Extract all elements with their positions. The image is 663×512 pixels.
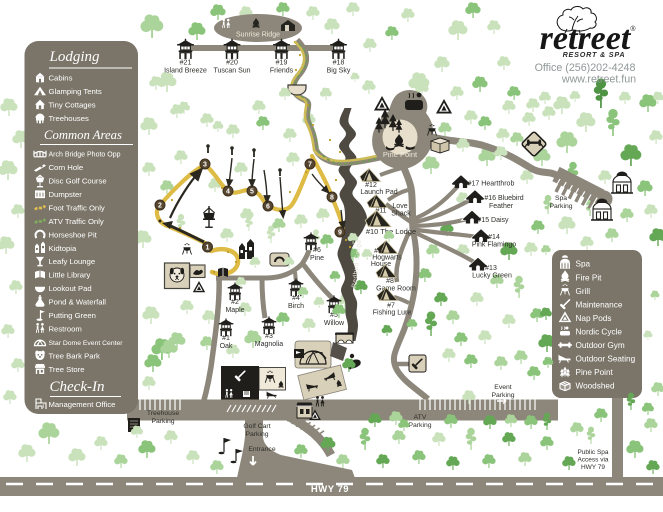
svg-text:#1: #1: [222, 335, 230, 342]
svg-text:Launch Pad: Launch Pad: [360, 189, 397, 196]
svg-text:Event: Event: [494, 384, 511, 391]
svg-text:#12: #12: [365, 182, 377, 189]
svg-text:Golf Cart: Golf Cart: [243, 423, 270, 430]
svg-text:#2: #2: [231, 299, 239, 306]
svg-text:Glamping Tents: Glamping Tents: [49, 87, 102, 96]
svg-text:Woodshed: Woodshed: [576, 382, 615, 391]
svg-text:Disc Golf Course: Disc Golf Course: [49, 177, 107, 186]
svg-text:Check-In: Check-In: [50, 379, 105, 395]
svg-text:#14: #14: [488, 234, 500, 241]
svg-text:Outdoor Gym: Outdoor Gym: [576, 341, 625, 350]
svg-text:Lookout Pad: Lookout Pad: [49, 284, 92, 293]
svg-text:#15 Daisy: #15 Daisy: [477, 217, 509, 224]
svg-text:4: 4: [226, 189, 230, 196]
svg-text:Parking: Parking: [549, 203, 572, 210]
svg-text:#6: #6: [313, 247, 321, 254]
svg-text:Foot Traffic Only: Foot Traffic Only: [49, 203, 105, 212]
svg-text:Maintenance: Maintenance: [576, 300, 623, 309]
svg-text:Tiny Cottages: Tiny Cottages: [49, 100, 96, 109]
svg-text:Pine Point: Pine Point: [383, 150, 418, 159]
svg-text:8: 8: [330, 195, 334, 202]
svg-text:6: 6: [266, 204, 270, 211]
svg-text:Grill: Grill: [576, 287, 591, 296]
svg-text:#21: #21: [180, 60, 192, 67]
svg-text:HWY 79: HWY 79: [311, 484, 349, 495]
svg-text:®: ®: [630, 25, 636, 33]
svg-text:Horseshoe Pit: Horseshoe Pit: [49, 230, 98, 239]
svg-text:HWY 79: HWY 79: [581, 464, 605, 471]
svg-text:#3: #3: [265, 333, 273, 340]
svg-text:#8: #8: [386, 278, 394, 285]
svg-text:Nap Pods: Nap Pods: [576, 314, 612, 323]
svg-text:Kidtopia: Kidtopia: [49, 244, 78, 253]
svg-text:Fire Pit: Fire Pit: [576, 273, 603, 282]
svg-text:Arch Bridge Photo Opp: Arch Bridge Photo Opp: [49, 152, 121, 159]
svg-text:3: 3: [203, 162, 207, 169]
svg-text:#7: #7: [387, 303, 395, 310]
svg-text:Lucky Green: Lucky Green: [472, 273, 512, 280]
svg-text:Parking: Parking: [408, 422, 431, 429]
svg-text:1: 1: [206, 245, 210, 252]
svg-text:Birch: Birch: [288, 303, 304, 310]
svg-text:Star Dome Event Center: Star Dome Event Center: [49, 340, 124, 347]
svg-text:Restroom: Restroom: [49, 324, 82, 333]
svg-text:Putting Green: Putting Green: [49, 311, 96, 320]
svg-text:Outdoor Seating: Outdoor Seating: [576, 355, 636, 364]
svg-text:Pond & Waterfall: Pond & Waterfall: [49, 298, 107, 307]
svg-text:Oak: Oak: [220, 343, 233, 350]
svg-text:Leafy Lounge: Leafy Lounge: [49, 257, 96, 266]
svg-text:House: House: [371, 261, 391, 268]
svg-text:Entrance: Entrance: [248, 446, 275, 453]
svg-text:Corn Hole: Corn Hole: [49, 163, 84, 172]
svg-text:Tree Store: Tree Store: [49, 365, 85, 374]
svg-text:Love: Love: [392, 203, 407, 210]
svg-text:Office (256)202-4248: Office (256)202-4248: [535, 62, 636, 74]
svg-text:#16 Bluebird: #16 Bluebird: [484, 195, 523, 202]
svg-text:Maple: Maple: [225, 307, 244, 314]
svg-text:#18: #18: [333, 60, 345, 67]
svg-text:Public Spa: Public Spa: [577, 449, 608, 456]
svg-text:Tuscan Sun: Tuscan Sun: [213, 68, 250, 75]
svg-text:Parking: Parking: [245, 431, 268, 438]
svg-text:#17 Heartthrob: #17 Heartthrob: [468, 181, 515, 188]
svg-text:Parking: Parking: [151, 418, 174, 425]
svg-text:Pine: Pine: [310, 255, 324, 262]
svg-text:Parking: Parking: [491, 392, 514, 399]
svg-text:Dumpster: Dumpster: [49, 190, 83, 199]
svg-text:#20: #20: [226, 60, 238, 67]
svg-text:Nordic Cycle: Nordic Cycle: [576, 327, 623, 336]
svg-text:5: 5: [250, 189, 254, 196]
svg-text:Treehouse: Treehouse: [147, 410, 179, 417]
svg-text:Magnolia: Magnolia: [255, 341, 284, 348]
svg-text:Fishing Lure: Fishing Lure: [373, 310, 412, 317]
svg-text:Feather: Feather: [489, 203, 514, 210]
svg-text:Shack: Shack: [391, 211, 411, 218]
svg-text:#4: #4: [292, 295, 300, 302]
svg-text:Spa: Spa: [576, 260, 591, 269]
svg-text:Tree Bark Park: Tree Bark Park: [49, 351, 101, 360]
svg-text:Big Sky: Big Sky: [327, 68, 351, 75]
svg-text:Pink Flamingo: Pink Flamingo: [472, 242, 516, 249]
svg-text:ATV: ATV: [414, 414, 427, 421]
svg-text:Sunrise Ridge: Sunrise Ridge: [236, 32, 280, 39]
svg-text:Management Office: Management Office: [49, 400, 116, 409]
svg-text:Little Library: Little Library: [49, 271, 91, 280]
svg-text:Access via: Access via: [577, 457, 608, 464]
svg-text:Island Breeze: Island Breeze: [164, 68, 207, 75]
svg-text:Friends: Friends: [270, 68, 294, 75]
svg-text:www.retreet.fun: www.retreet.fun: [561, 74, 636, 86]
svg-text:#13: #13: [485, 265, 497, 272]
svg-text:Treehouses: Treehouses: [49, 114, 89, 123]
svg-text:2: 2: [158, 203, 162, 210]
svg-text:9: 9: [338, 230, 342, 237]
svg-text:Willow: Willow: [324, 320, 345, 327]
svg-text:Pine Point: Pine Point: [576, 368, 614, 377]
svg-text:7: 7: [308, 162, 312, 169]
svg-text:Spa: Spa: [555, 195, 567, 202]
svg-text:RESORT & SPA: RESORT & SPA: [563, 50, 626, 59]
svg-text:Lodging: Lodging: [48, 49, 100, 65]
svg-text:ATV Traffic Only: ATV Traffic Only: [49, 217, 104, 226]
svg-text:Cabins: Cabins: [49, 74, 73, 83]
svg-text:#19: #19: [276, 60, 288, 67]
svg-text:Common Areas: Common Areas: [44, 128, 122, 142]
